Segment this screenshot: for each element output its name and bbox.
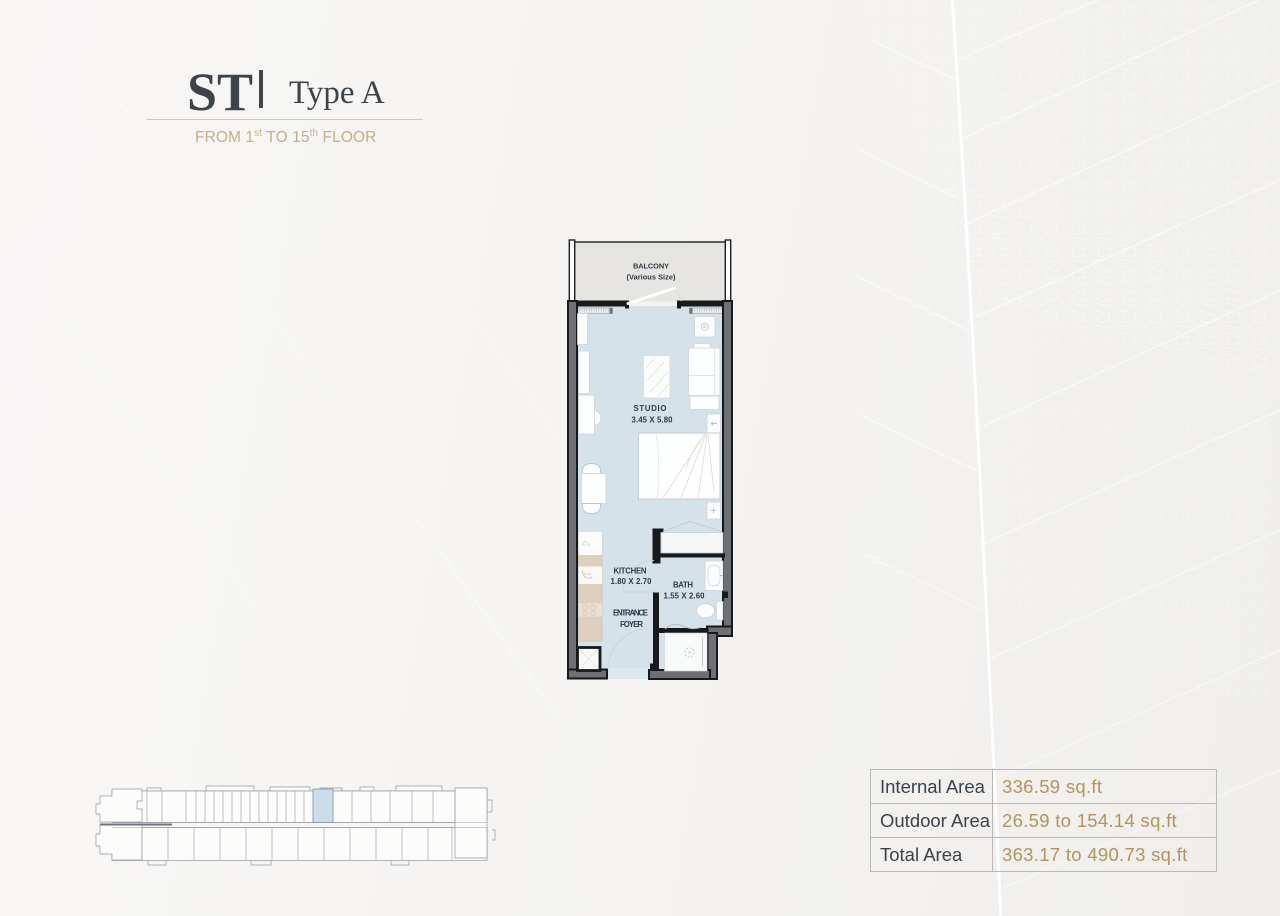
svg-text:1.80 X 2.70: 1.80 X 2.70 <box>611 577 653 586</box>
svg-text:BATH: BATH <box>673 581 693 590</box>
svg-text:KITCHEN: KITCHEN <box>614 567 647 576</box>
svg-text:1.55 X 2.60: 1.55 X 2.60 <box>664 592 706 601</box>
svg-text:STUDIO: STUDIO <box>634 404 667 413</box>
svg-text:FOYER: FOYER <box>620 620 643 629</box>
svg-text:3.45 X 5.80: 3.45 X 5.80 <box>632 416 674 425</box>
svg-text:(Various Size): (Various Size) <box>627 273 677 282</box>
svg-text:ENTRANCE: ENTRANCE <box>613 609 648 618</box>
svg-text:BALCONY: BALCONY <box>633 262 669 271</box>
